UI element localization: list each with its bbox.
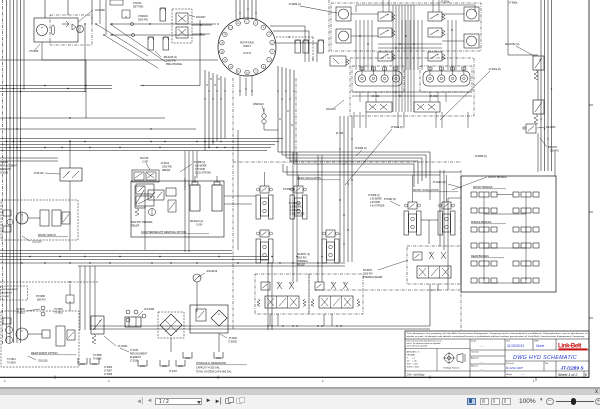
svg-text:JT.0906: JT.0906: [104, 367, 113, 369]
svg-text:.JT.0F100: .JT.0F100: [33, 172, 44, 175]
svg-text:.XXXX ± .0005: .XXXX ± .0005: [407, 367, 419, 369]
svg-text:JT./172: JT./172: [243, 52, 252, 55]
svg-text:JT./1289 S: JT./1289 S: [560, 366, 584, 372]
svg-text:DWR: DWR: [534, 341, 539, 343]
svg-text:THERMAL RELIEF: THERMAL RELIEF: [363, 276, 383, 279]
svg-text:S2L0126: S2L0126: [38, 360, 48, 363]
svg-text:-JT.080a: -JT.080a: [508, 2, 518, 5]
svg-text:FRONT OSCILLATION: FRONT OSCILLATION: [413, 189, 439, 192]
svg-text:2.00 BORE: 2.00 BORE: [370, 199, 382, 201]
svg-text:Drawn: Drawn: [471, 340, 476, 343]
svg-text:3.00 BORE: 3.00 BORE: [195, 166, 207, 168]
svg-text:MAJ0782 (2): MAJ0782 (2): [505, 43, 519, 46]
svg-text:4.00 STROKE: 4.00 STROKE: [370, 206, 385, 208]
svg-text:.JT.L9403: .JT.L9403: [117, 345, 128, 348]
svg-text:PRE-CHARGE: PRE-CHARGE: [166, 63, 182, 66]
svg-text:REPLACEMENT: REPLACEMENT: [2, 288, 19, 291]
svg-text:2.00 ROD: 2.00 ROD: [290, 210, 301, 212]
svg-text:.JT.0986 (2): .JT.0986 (2): [288, 3, 301, 6]
svg-text:.JT.0088 (2): .JT.0088 (2): [288, 203, 300, 205]
svg-text:Approval: Approval: [471, 357, 479, 360]
svg-text:2500 PSI: 2500 PSI: [138, 19, 148, 22]
svg-text:REPLACEMENT: REPLACEMENT: [130, 353, 148, 356]
svg-text:JT.0088 (2): JT.0088 (2): [368, 195, 380, 197]
svg-text:JT.0999: JT.0999: [29, 49, 39, 53]
svg-text:PT.0452 (2): PT.0452 (2): [384, 199, 396, 201]
svg-text:RJL0276: RJL0276: [326, 108, 336, 111]
svg-text:11/25/2013: 11/25/2013: [507, 344, 524, 348]
svg-text:Weight: Weight: [506, 373, 512, 376]
svg-text:ELEMENT: ELEMENT: [0, 169, 11, 171]
svg-text:S1L0126: S1L0126: [32, 241, 42, 244]
svg-text:JT.0032: JT.0032: [2, 296, 10, 298]
svg-text:JT.0003: JT.0003: [0, 173, 9, 175]
svg-text:DSR0116: DSR0116: [253, 103, 264, 106]
svg-text:.X ± .1: .X ± .1: [407, 358, 416, 360]
svg-text:.JT.0088 (2): .JT.0088 (2): [193, 162, 205, 164]
svg-text:This drawing is the property o: This drawing is the property of Link-Bel…: [407, 332, 588, 335]
svg-text:whole or part, of design and d: whole or part, of design and details con…: [407, 335, 586, 338]
svg-text:.XXX ± .003: .XXX ± .003: [407, 364, 418, 366]
svg-text:N-S.0096: N-S.0096: [144, 308, 155, 311]
svg-text:FRONT BRAKES: FRONT BRAKES: [473, 186, 493, 189]
svg-text:ANGULAR ± 1°: ANGULAR ± 1°: [407, 351, 420, 354]
svg-text:JOINT: JOINT: [243, 44, 251, 48]
svg-text:Rev: Rev: [545, 363, 548, 365]
svg-text:Checked: Checked: [471, 352, 478, 354]
svg-text:2.00 BORE: 2.00 BORE: [290, 207, 302, 209]
svg-text:PT.0082 (4): PT.0082 (4): [283, 189, 295, 191]
svg-text:JT.0907: JT.0907: [104, 371, 113, 373]
svg-text:DWG HYD SCHEMATIC: DWG HYD SCHEMATIC: [513, 355, 577, 361]
svg-text:TX 8515: TX 8515: [16, 313, 25, 315]
svg-text:RJL0007: RJL0007: [196, 16, 206, 19]
svg-text:THERMAL: THERMAL: [297, 260, 309, 263]
svg-text:REAR OSCILLATION: REAR OSCILLATION: [297, 177, 321, 180]
svg-text:None: None: [536, 344, 544, 348]
svg-text:MIDDLE BRAKES: MIDDLE BRAKES: [471, 221, 492, 224]
svg-text:TX 8514: TX 8514: [7, 359, 16, 361]
svg-text:TX 8600: TX 8600: [16, 309, 25, 311]
svg-text:ELEMENT: ELEMENT: [2, 293, 13, 295]
svg-text:-JT.000a: -JT.000a: [440, 1, 450, 4]
svg-text:JT.00001: JT.00001: [228, 342, 238, 344]
svg-text:DECIMAL: DECIMAL: [407, 354, 415, 357]
svg-text:Sheet 1 of 2: Sheet 1 of 2: [558, 373, 577, 377]
svg-text:3000 PSI: 3000 PSI: [297, 258, 307, 260]
svg-text:-JT.000a (6): -JT.000a (6): [488, 68, 501, 71]
svg-text:ELEMENT: ELEMENT: [130, 357, 141, 359]
svg-text:RELIEF: RELIEF: [131, 225, 140, 228]
svg-text:MAJ0124 (2): MAJ0124 (2): [190, 220, 203, 223]
svg-text:1.75 ROD: 1.75 ROD: [195, 169, 206, 171]
svg-text:.XX ± .06: .XX ± .06: [407, 361, 417, 363]
svg-text:C.097: C.097: [142, 161, 149, 164]
svg-text:40L0030: 40L0030: [546, 126, 556, 129]
svg-text:Third Angle Projection: Third Angle Projection: [443, 367, 460, 370]
svg-text:Ø..190: Ø..190: [430, 95, 438, 98]
svg-text:JT.0908: JT.0908: [104, 374, 113, 376]
svg-text:R-12W-1007: R-12W-1007: [506, 366, 523, 370]
svg-text:CAD - Solid Edge: CAD - Solid Edge: [407, 373, 426, 376]
svg-text:.JT.0068 (2): .JT.0068 (2): [354, 147, 367, 150]
svg-text:2.00 ROD: 2.00 ROD: [370, 202, 381, 204]
svg-text:FRONT BRAKES: FRONT BRAKES: [488, 176, 507, 179]
svg-text:HYDRAULIC RESERVOIR: HYDRAULIC RESERVOIR: [196, 362, 226, 365]
svg-text:JT.0035: JT.0035: [130, 350, 139, 352]
svg-text:2.50 STROKE: 2.50 STROKE: [290, 214, 305, 216]
svg-text:TA 8545: TA 8545: [93, 358, 102, 361]
svg-text:SO Level: SO Level: [506, 363, 514, 365]
svg-text:CAPACITY # 250 GAL: CAPACITY # 250 GAL: [196, 367, 220, 370]
svg-text:REAR WINCH OPTION: REAR WINCH OPTION: [31, 352, 58, 355]
svg-text:TX 8524: TX 8524: [7, 363, 16, 365]
svg-text:-JT.0026: -JT.0026: [228, 338, 238, 340]
svg-text:NAJ0071: NAJ0071: [363, 269, 373, 272]
svg-text:REAR BRAKES: REAR BRAKES: [471, 255, 489, 258]
svg-text:Date: Date: [506, 340, 510, 343]
svg-text:TX 8553: TX 8553: [54, 309, 63, 311]
svg-text:COUNTERWEIGHT REMOVAL OPTION: COUNTERWEIGHT REMOVAL OPTION: [141, 231, 186, 234]
svg-text:.JT.000a (6): .JT.000a (6): [390, 126, 403, 129]
svg-text:REPLACEMENT: REPLACEMENT: [0, 165, 18, 168]
svg-text:unless otherwise specified.: unless otherwise specified.: [407, 345, 428, 348]
svg-text:-PSU0219: -PSU0219: [206, 270, 218, 273]
svg-text:TOTAL SYSTEM CAP # 360 GAL: TOTAL SYSTEM CAP # 360 GAL: [196, 371, 232, 374]
svg-text:JT.0000: JT.0000: [0, 162, 9, 164]
svg-text:JT.4327: JT.4327: [169, 371, 178, 373]
svg-text:SETTING: SETTING: [133, 6, 144, 9]
svg-text:Ø..190: Ø..190: [336, 132, 344, 135]
svg-text:JT.0030: JT.0030: [130, 361, 139, 363]
svg-text:23.25 STROKE: 23.25 STROKE: [195, 173, 211, 175]
svg-text:.JT.0988 (2): .JT.0988 (2): [474, 155, 487, 158]
svg-text:Material: Material: [471, 365, 478, 368]
svg-text:3000 PSI: 3000 PSI: [363, 274, 373, 276]
svg-text:NAJ0071 (2): NAJ0071 (2): [297, 253, 310, 256]
svg-text:RELIEF: RELIEF: [162, 169, 171, 172]
svg-text:FRONT WINCH: FRONT WINCH: [38, 234, 56, 237]
svg-text:TX 8505: TX 8505: [93, 355, 102, 357]
svg-text:500 PSI: 500 PSI: [37, 299, 46, 302]
svg-text:RELIEF: RELIEF: [297, 265, 306, 267]
svg-text:TX 8518: TX 8518: [54, 313, 63, 315]
svg-text:C-024: C-024: [196, 225, 203, 227]
